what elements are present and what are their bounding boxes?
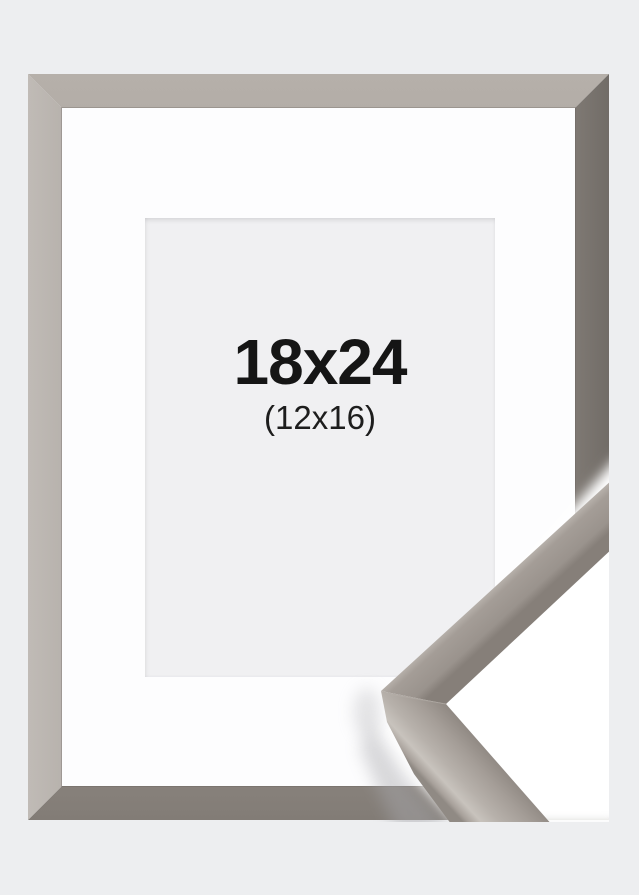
frame-mat: 18x24 (12x16) — [62, 108, 575, 786]
mat-opening: 18x24 (12x16) — [145, 218, 495, 677]
product-photo: 18x24 (12x16) — [0, 0, 639, 895]
size-label: 18x24 — [234, 330, 407, 394]
picture-frame: 18x24 (12x16) — [28, 74, 609, 820]
matted-size-label: (12x16) — [264, 401, 376, 434]
